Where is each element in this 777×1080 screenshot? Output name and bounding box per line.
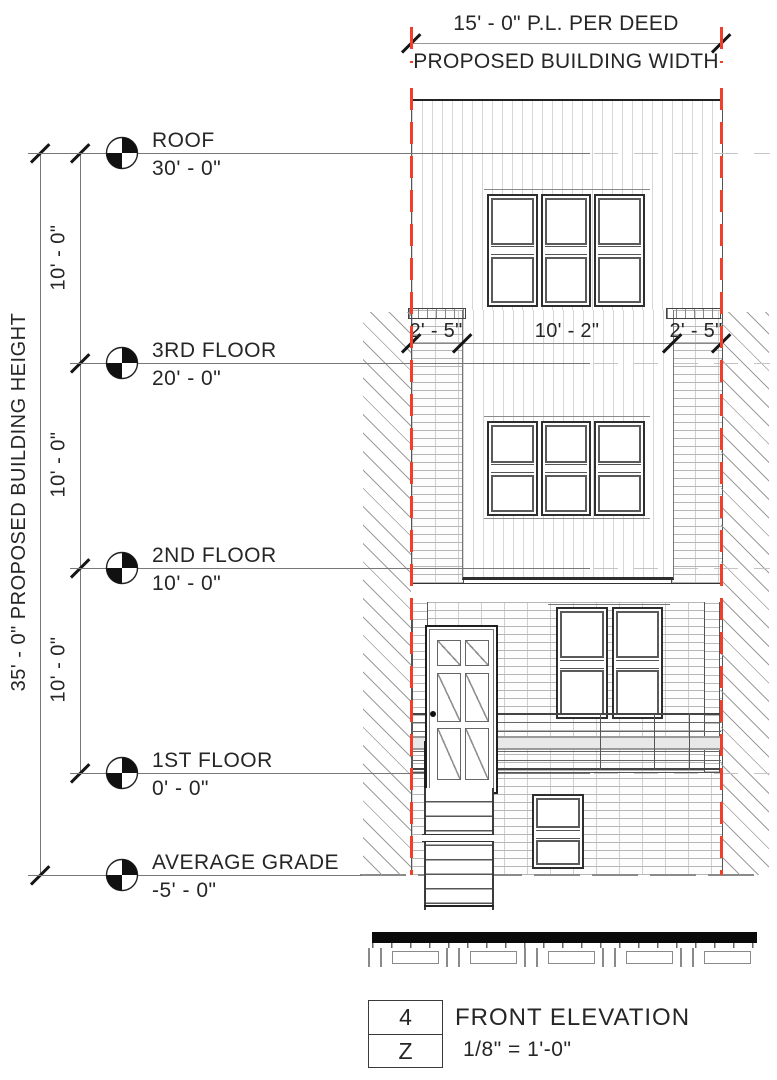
middle-window-head-line [484,416,650,417]
door-panel [465,728,489,780]
adjacent-hatch-left [363,312,411,875]
upper-window-group [487,194,645,307]
door-panel [437,728,461,780]
level-name: ROOF [152,129,215,153]
floor-spacing-dim: 10' - 0" [48,213,71,303]
level-elevation: -5' - 0" [152,879,216,903]
pier-sill-left [408,308,466,319]
sheet-letter: Z [369,1035,442,1068]
level-symbol-icon [105,551,139,585]
detail-number: 4 [369,1001,442,1035]
exterior-stair [424,788,494,910]
level-symbol-icon [105,858,139,892]
middle-window-sill-line [484,518,650,519]
front-elevation-drawing: 35' - 0" PROPOSED BUILDING HEIGHT 10' - … [0,0,777,1080]
level-symbol-icon [105,756,139,790]
door-knob [430,711,436,717]
pier-sill-right [666,308,721,319]
floor-band [411,583,721,604]
first-floor-window-head-line [548,604,670,605]
level-elevation: 0' - 0" [152,777,209,801]
width-dim-text: 15' - 0" P.L. PER DEED [411,12,721,36]
facade-dim: 2' - 5" [656,320,736,343]
rail-post [600,713,601,770]
window-unit [556,607,608,719]
ground-bar [372,932,757,943]
facade-dim: 2' - 5" [396,320,476,343]
door-panel [437,673,461,722]
width-dim-subtext: PROPOSED BUILDING WIDTH [411,50,721,74]
first-floor-window-pair [556,607,663,719]
window-unit [541,194,592,307]
window-unit [487,421,538,516]
property-line-right [720,88,723,875]
upper-window-head-line [484,189,650,190]
drawing-scale: 1/8" = 1'-0" [463,1038,571,1062]
level-name: AVERAGE GRADE [152,851,339,875]
property-line-left [410,88,413,875]
floor-dim-line [80,153,81,773]
level-name: 1ST FLOOR [152,749,273,773]
level-name: 2ND FLOOR [152,544,277,568]
sidewalk-pattern [366,948,756,967]
window-unit [594,194,645,307]
drawing-title: FRONT ELEVATION [455,1004,690,1032]
window-unit [541,421,592,516]
floor-spacing-dim: 10' - 0" [48,420,71,510]
basement-window [532,794,584,869]
brick-pier-right [671,310,723,583]
level-symbol-icon [105,136,139,170]
rail-post [689,713,690,770]
window-unit [487,194,538,307]
level-elevation: 10' - 0" [152,572,221,596]
level-name: 3RD FLOOR [152,339,277,363]
level-elevation: 30' - 0" [152,157,221,181]
door-panel [465,673,489,722]
level-symbol-icon [105,346,139,380]
window-unit [612,607,664,719]
middle-window-group [487,421,645,516]
height-dim-line [40,153,41,875]
rail-post [654,713,655,770]
door-panel [437,640,461,666]
window-unit [594,421,645,516]
door-panel [465,640,489,666]
level-elevation: 20' - 0" [152,367,221,391]
facade-dim: 10' - 2" [507,320,627,343]
floor-spacing-dim: 10' - 0" [48,625,71,715]
height-dim-label: 35' - 0" PROPOSED BUILDING HEIGHT [8,282,34,722]
adjacent-hatch-right [721,312,769,875]
drawing-number-box: 4 Z [368,1000,443,1068]
entry-door [425,625,498,794]
grade-line [360,874,760,876]
